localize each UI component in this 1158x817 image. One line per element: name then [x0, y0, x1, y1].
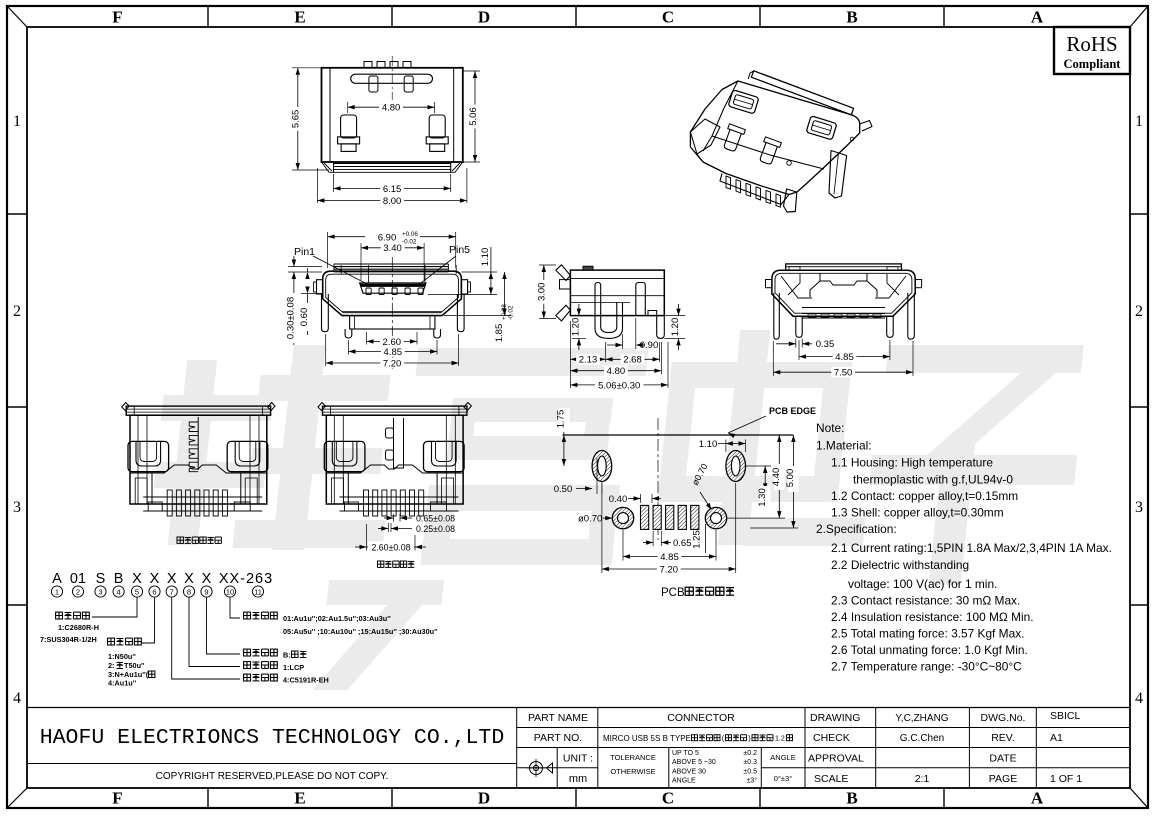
svg-text:4: 4 [1135, 690, 1143, 707]
svg-text:2.1 Current rating:1,5PIN 1: 2.1 Current rating:1,5PIN 1.8A Max/2,3,4… [831, 541, 1112, 555]
svg-text:A: A [52, 571, 62, 587]
svg-text:7:SUS304R-1/2H: 7:SUS304R-1/2H [40, 635, 97, 644]
svg-text:05:Au5u'' ;10:Au10u'' ;15:Au15: 05:Au5u'' ;10:Au10u'' ;15:Au15u'' ;30:Au… [283, 627, 438, 636]
svg-text:1: 1 [1135, 113, 1143, 130]
svg-text:PART NAME: PART NAME [528, 712, 588, 724]
svg-text:2.7 Temperature range: -30°: 2.7 Temperature range: -30°C~80°C [831, 660, 1022, 674]
svg-text:5.00: 5.00 [785, 469, 796, 488]
svg-text:E: E [294, 8, 305, 27]
svg-text:4:Au1u'': 4:Au1u'' [108, 679, 136, 688]
svg-text:1.Material:: 1.Material: [816, 439, 872, 453]
svg-text:B: B [114, 571, 124, 587]
svg-text:1: 1 [55, 587, 59, 596]
svg-text:A: A [1031, 8, 1044, 27]
svg-text:T50u'': T50u'' [124, 661, 145, 670]
svg-text:PCB: PCB [661, 587, 685, 599]
svg-text:3.00: 3.00 [537, 283, 548, 302]
svg-text:A: A [1031, 789, 1044, 808]
svg-text:4.85: 4.85 [384, 347, 403, 358]
svg-text:1.2: 1.2 [775, 736, 785, 743]
svg-text:XX-263: XX-263 [219, 571, 273, 587]
svg-text:Note:: Note: [816, 421, 844, 435]
svg-text:0.25±0.08: 0.25±0.08 [416, 524, 455, 534]
svg-text:4.85: 4.85 [660, 552, 679, 563]
svg-text:UP TO 5: UP TO 5 [672, 750, 699, 757]
svg-text:1.85: 1.85 [494, 324, 505, 343]
svg-text:-0.02: -0.02 [508, 305, 515, 320]
svg-text:PAGE: PAGE [989, 773, 1017, 785]
svg-text:1.1 Housing: High temperatu: 1.1 Housing: High temperature [831, 456, 993, 470]
svg-text:±3°: ±3° [746, 777, 757, 785]
svg-text:2.6 Total unmating force:: 2.6 Total unmating force: 1.0 Kgf Min. [831, 643, 1028, 657]
svg-text:5.06±0.30: 5.06±0.30 [598, 380, 640, 391]
svg-text:Pin5: Pin5 [449, 244, 470, 256]
svg-text:3: 3 [1135, 499, 1143, 516]
svg-text:4.40: 4.40 [771, 468, 782, 487]
svg-text:TOLERANCE: TOLERANCE [610, 753, 656, 762]
svg-text:DRAWING: DRAWING [810, 712, 860, 724]
svg-text:1:N50u'': 1:N50u'' [108, 652, 136, 661]
svg-text:8: 8 [187, 587, 191, 596]
svg-text:ABOVE 5 ~30: ABOVE 5 ~30 [672, 759, 716, 766]
svg-text:CONNECTOR: CONNECTOR [667, 712, 735, 724]
svg-text:7.20: 7.20 [660, 564, 679, 575]
svg-text:B: B [846, 789, 857, 808]
svg-text:1.75: 1.75 [556, 410, 567, 429]
svg-text:01:Au1u'';02:Au1.5u'';03:Au3u': 01:Au1u'';02:Au1.5u'';03:Au3u'' [283, 614, 391, 623]
svg-text:1.30: 1.30 [757, 488, 768, 507]
svg-text:X: X [202, 571, 212, 587]
svg-text:0°±3°: 0°±3° [774, 774, 792, 783]
svg-text:1.10: 1.10 [699, 439, 718, 450]
svg-text:Compliant: Compliant [1064, 57, 1122, 71]
svg-text:2: 2 [13, 303, 21, 320]
svg-text:4.80: 4.80 [607, 366, 626, 377]
svg-text:DATE: DATE [989, 753, 1016, 765]
svg-text:ABOVE 30: ABOVE 30 [672, 769, 706, 776]
svg-text:11: 11 [254, 587, 262, 596]
svg-text:4.80: 4.80 [382, 103, 401, 114]
svg-text:X: X [184, 571, 194, 587]
svg-text:2: 2 [1135, 303, 1143, 320]
svg-text:1.2 Contact: copper alloy,t: 1.2 Contact: copper alloy,t=0.15mm [831, 489, 1018, 503]
svg-text:2.3 Contact resistance: 30: 2.3 Contact resistance: 30 mΩ Max. [831, 594, 1020, 608]
svg-text:6: 6 [152, 587, 156, 596]
svg-text:4.85: 4.85 [835, 352, 854, 363]
svg-text:+0.06: +0.06 [402, 231, 418, 238]
svg-text:1.10: 1.10 [480, 248, 491, 267]
svg-text:0.30±0.08: 0.30±0.08 [286, 297, 297, 339]
svg-text:DWG.No.: DWG.No. [981, 712, 1026, 724]
svg-text:ANGLE: ANGLE [672, 778, 696, 785]
svg-text:5: 5 [135, 587, 139, 596]
svg-text:1.25: 1.25 [692, 530, 703, 549]
svg-text:RoHS: RoHS [1066, 32, 1117, 56]
svg-text:B:: B: [283, 651, 291, 660]
svg-text:HAOFU ELECTRIONCS TECHNOLOGY C: HAOFU ELECTRIONCS TECHNOLOGY CO.,LTD [40, 726, 504, 750]
svg-text:2.2 Dielectric withstanding: 2.2 Dielectric withstanding [831, 558, 969, 572]
svg-text:±0.2: ±0.2 [743, 750, 757, 757]
svg-text:±0.3: ±0.3 [743, 759, 757, 766]
svg-text:0.40: 0.40 [609, 494, 628, 505]
svg-text:2.13: 2.13 [579, 355, 598, 366]
svg-text:X: X [167, 571, 177, 587]
svg-text:2.60±0.08: 2.60±0.08 [371, 542, 410, 552]
svg-text:voltage: 100 V(ac) for 1: voltage: 100 V(ac) for 1 min. [848, 577, 997, 591]
svg-text:MIRCO USB 5S B TYPE: MIRCO USB 5S B TYPE [603, 734, 691, 743]
svg-text:0.35: 0.35 [816, 339, 835, 350]
svg-text:2.68: 2.68 [623, 355, 642, 366]
svg-text:B: B [846, 8, 857, 27]
svg-text:E: E [294, 789, 305, 808]
svg-text:01: 01 [70, 571, 86, 587]
svg-text:F: F [112, 789, 122, 808]
svg-text:4: 4 [117, 587, 121, 596]
svg-text:2:1: 2:1 [915, 773, 930, 785]
svg-text:1: 1 [13, 113, 21, 130]
svg-text:7.50: 7.50 [834, 368, 853, 379]
svg-text:C: C [662, 789, 674, 808]
svg-text:X: X [132, 571, 142, 587]
svg-text:7.20: 7.20 [383, 358, 402, 369]
svg-text:PCB EDGE: PCB EDGE [769, 406, 816, 416]
svg-text:thermoplastic with g.f,UL94v: thermoplastic with g.f,UL94v-0 [853, 473, 1013, 487]
svg-text:Pin1: Pin1 [294, 246, 315, 258]
svg-text:6.15: 6.15 [383, 184, 402, 195]
svg-text:3: 3 [98, 587, 102, 596]
svg-text:REV.: REV. [991, 732, 1015, 744]
svg-text:2: 2 [76, 587, 80, 596]
svg-text:APPROVAL: APPROVAL [808, 753, 864, 765]
svg-text:0.65: 0.65 [673, 538, 692, 549]
svg-text:8.00: 8.00 [383, 196, 402, 207]
svg-text:2.4 Insulation resistance:: 2.4 Insulation resistance: 100 MΩ Min. [831, 610, 1034, 624]
svg-text:D: D [478, 789, 490, 808]
svg-text:1:C2680R-H: 1:C2680R-H [58, 623, 99, 632]
svg-text:2.5 Total mating force: 3.: 2.5 Total mating force: 3.57 Kgf Max. [831, 627, 1024, 641]
svg-text:Y,C,ZHANG: Y,C,ZHANG [895, 713, 948, 724]
svg-text:±0.5: ±0.5 [743, 769, 757, 776]
svg-text:X: X [150, 571, 160, 587]
svg-text:ANGLE: ANGLE [770, 753, 795, 762]
svg-text:0.60: 0.60 [299, 308, 310, 327]
svg-text:C: C [662, 8, 674, 27]
svg-text:ø0.70: ø0.70 [578, 514, 602, 525]
svg-text:SCALE: SCALE [814, 773, 848, 785]
svg-text:3: 3 [13, 499, 21, 516]
svg-text:5.65: 5.65 [291, 110, 302, 128]
svg-text:S: S [96, 571, 106, 587]
svg-text:10: 10 [226, 587, 234, 596]
svg-text:COPYRIGHT RESERVED,PLEASE DO N: COPYRIGHT RESERVED,PLEASE DO NOT COPY. [156, 771, 389, 782]
svg-text:2:: 2: [108, 661, 115, 670]
svg-text:1.20: 1.20 [670, 318, 681, 337]
svg-text:PART NO.: PART NO. [534, 732, 582, 744]
svg-text:9: 9 [204, 587, 208, 596]
svg-text:0.50: 0.50 [554, 484, 573, 495]
svg-text:2.Specification:: 2.Specification: [816, 522, 897, 536]
svg-text:CHECK: CHECK [813, 732, 850, 744]
svg-text:G.C.Chen: G.C.Chen [900, 733, 944, 744]
svg-text:1 OF 1: 1 OF 1 [1050, 773, 1082, 785]
svg-text:1.3 Shell: copper alloy,t=0: 1.3 Shell: copper alloy,t=0.30mm [831, 506, 1004, 520]
svg-text:D: D [478, 8, 490, 27]
svg-text:5.06: 5.06 [468, 107, 479, 126]
svg-text:7: 7 [170, 587, 174, 596]
svg-text:F: F [112, 8, 122, 27]
svg-text:6.90: 6.90 [378, 232, 397, 243]
svg-text:4:C5191R-EH: 4:C5191R-EH [283, 676, 329, 685]
svg-text:4: 4 [13, 690, 21, 707]
svg-text:A1: A1 [1050, 732, 1063, 744]
svg-text:UNIT :: UNIT : [563, 753, 593, 765]
svg-text:OTHERWISE: OTHERWISE [610, 767, 655, 776]
svg-text:3.40: 3.40 [383, 243, 402, 254]
svg-text:0.65±0.08: 0.65±0.08 [416, 514, 455, 524]
svg-text:1.20: 1.20 [571, 318, 582, 337]
svg-text:SBICL: SBICL [1050, 710, 1081, 722]
svg-text:1:LCP: 1:LCP [283, 663, 304, 672]
svg-text:mm: mm [569, 773, 587, 785]
